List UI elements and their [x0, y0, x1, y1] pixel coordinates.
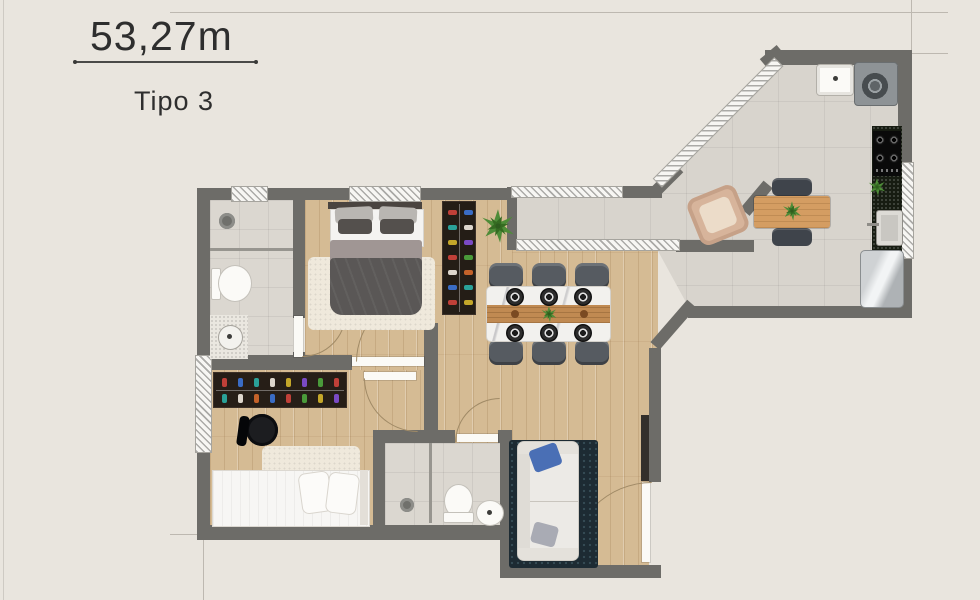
terrace-rail-top [512, 187, 622, 197]
bed1-cushion-right [380, 219, 414, 234]
plate-4 [506, 324, 524, 342]
floor-plan-page: 53,27m Tipo 3 [0, 0, 980, 600]
wall-terrace-top [616, 186, 662, 198]
reference-line-bottom-left-v [203, 534, 204, 600]
reference-line-left-edge [3, 0, 4, 600]
dining-chair-6 [575, 339, 609, 365]
laundry-tub-drain [833, 76, 838, 81]
bed1-cushion-left [338, 219, 372, 234]
area-label: 53,27m [90, 13, 233, 60]
bed2-headboard [360, 470, 368, 525]
plate-3 [574, 288, 592, 306]
sink-drain-bathroom2 [487, 510, 492, 515]
table-bowl-right [580, 310, 588, 318]
wall-bathroom2-left [373, 443, 385, 525]
underline-dot-left [73, 60, 77, 64]
window-bedroom2 [196, 356, 211, 452]
dining-chair-3 [575, 263, 609, 289]
dining-chair-1 [489, 263, 523, 289]
window-bathroom1 [232, 187, 267, 201]
kitchen-sink [876, 210, 903, 246]
plate-2 [540, 288, 558, 306]
plate-1 [506, 288, 524, 306]
underline-dot-right [254, 60, 258, 64]
sofa-seat-divider [530, 501, 578, 502]
plate-6 [574, 324, 592, 342]
tv-panel [641, 415, 649, 481]
small-table [754, 196, 830, 228]
shower-glass-bathroom1 [210, 248, 293, 251]
table-bowl-left [511, 310, 519, 318]
shower-drain-bathroom2 [400, 498, 414, 512]
dining-table-runner [487, 305, 610, 323]
area-underline [75, 61, 257, 63]
stove-burner-1 [875, 135, 885, 145]
stove-burner-4 [889, 153, 899, 163]
shower-glass-bathroom2 [429, 443, 432, 523]
stove-burner-2 [889, 135, 899, 145]
wall-living-right [649, 348, 661, 482]
plate-5 [540, 324, 558, 342]
type-label: Tipo 3 [134, 86, 214, 117]
stove-knobs [876, 169, 898, 172]
dining-chair-2 [532, 263, 566, 289]
small-table-chair-bottom [772, 228, 812, 246]
toilet-bowl-bathroom1 [218, 265, 252, 302]
sink-drain-bathroom1 [227, 334, 232, 339]
reference-line-top-right-h [911, 53, 948, 54]
reference-line-top-right-v [911, 0, 912, 55]
small-table-chair-top [772, 178, 812, 196]
armchair-cushion [698, 195, 739, 235]
shoe-rack-bedroom2 [213, 372, 347, 408]
terrace-rail-bottom [517, 240, 679, 250]
bed1-duvet [330, 258, 422, 315]
wall-bathroom1-divider [293, 200, 305, 318]
fridge [860, 250, 904, 308]
kitchen-faucet [867, 223, 879, 226]
shoe-rack-hall [442, 201, 476, 315]
bed2-pillow-2 [326, 472, 360, 514]
sofa-back [518, 442, 530, 560]
wall-bottom-left [197, 525, 512, 540]
washing-machine-drum [861, 72, 889, 100]
wall-hall-stub [424, 323, 438, 430]
toilet-tank-bathroom2 [443, 512, 474, 523]
wall-bathroom2-top [373, 430, 455, 443]
dining-chair-5 [532, 339, 566, 365]
shower-drain-bathroom1 [219, 213, 235, 229]
sofa-armrest-bottom [518, 548, 578, 560]
office-chair-seat [246, 414, 278, 446]
window-bedroom1 [350, 187, 420, 201]
reference-line-top [170, 12, 948, 13]
stove-burner-3 [875, 153, 885, 163]
dining-chair-4 [489, 339, 523, 365]
